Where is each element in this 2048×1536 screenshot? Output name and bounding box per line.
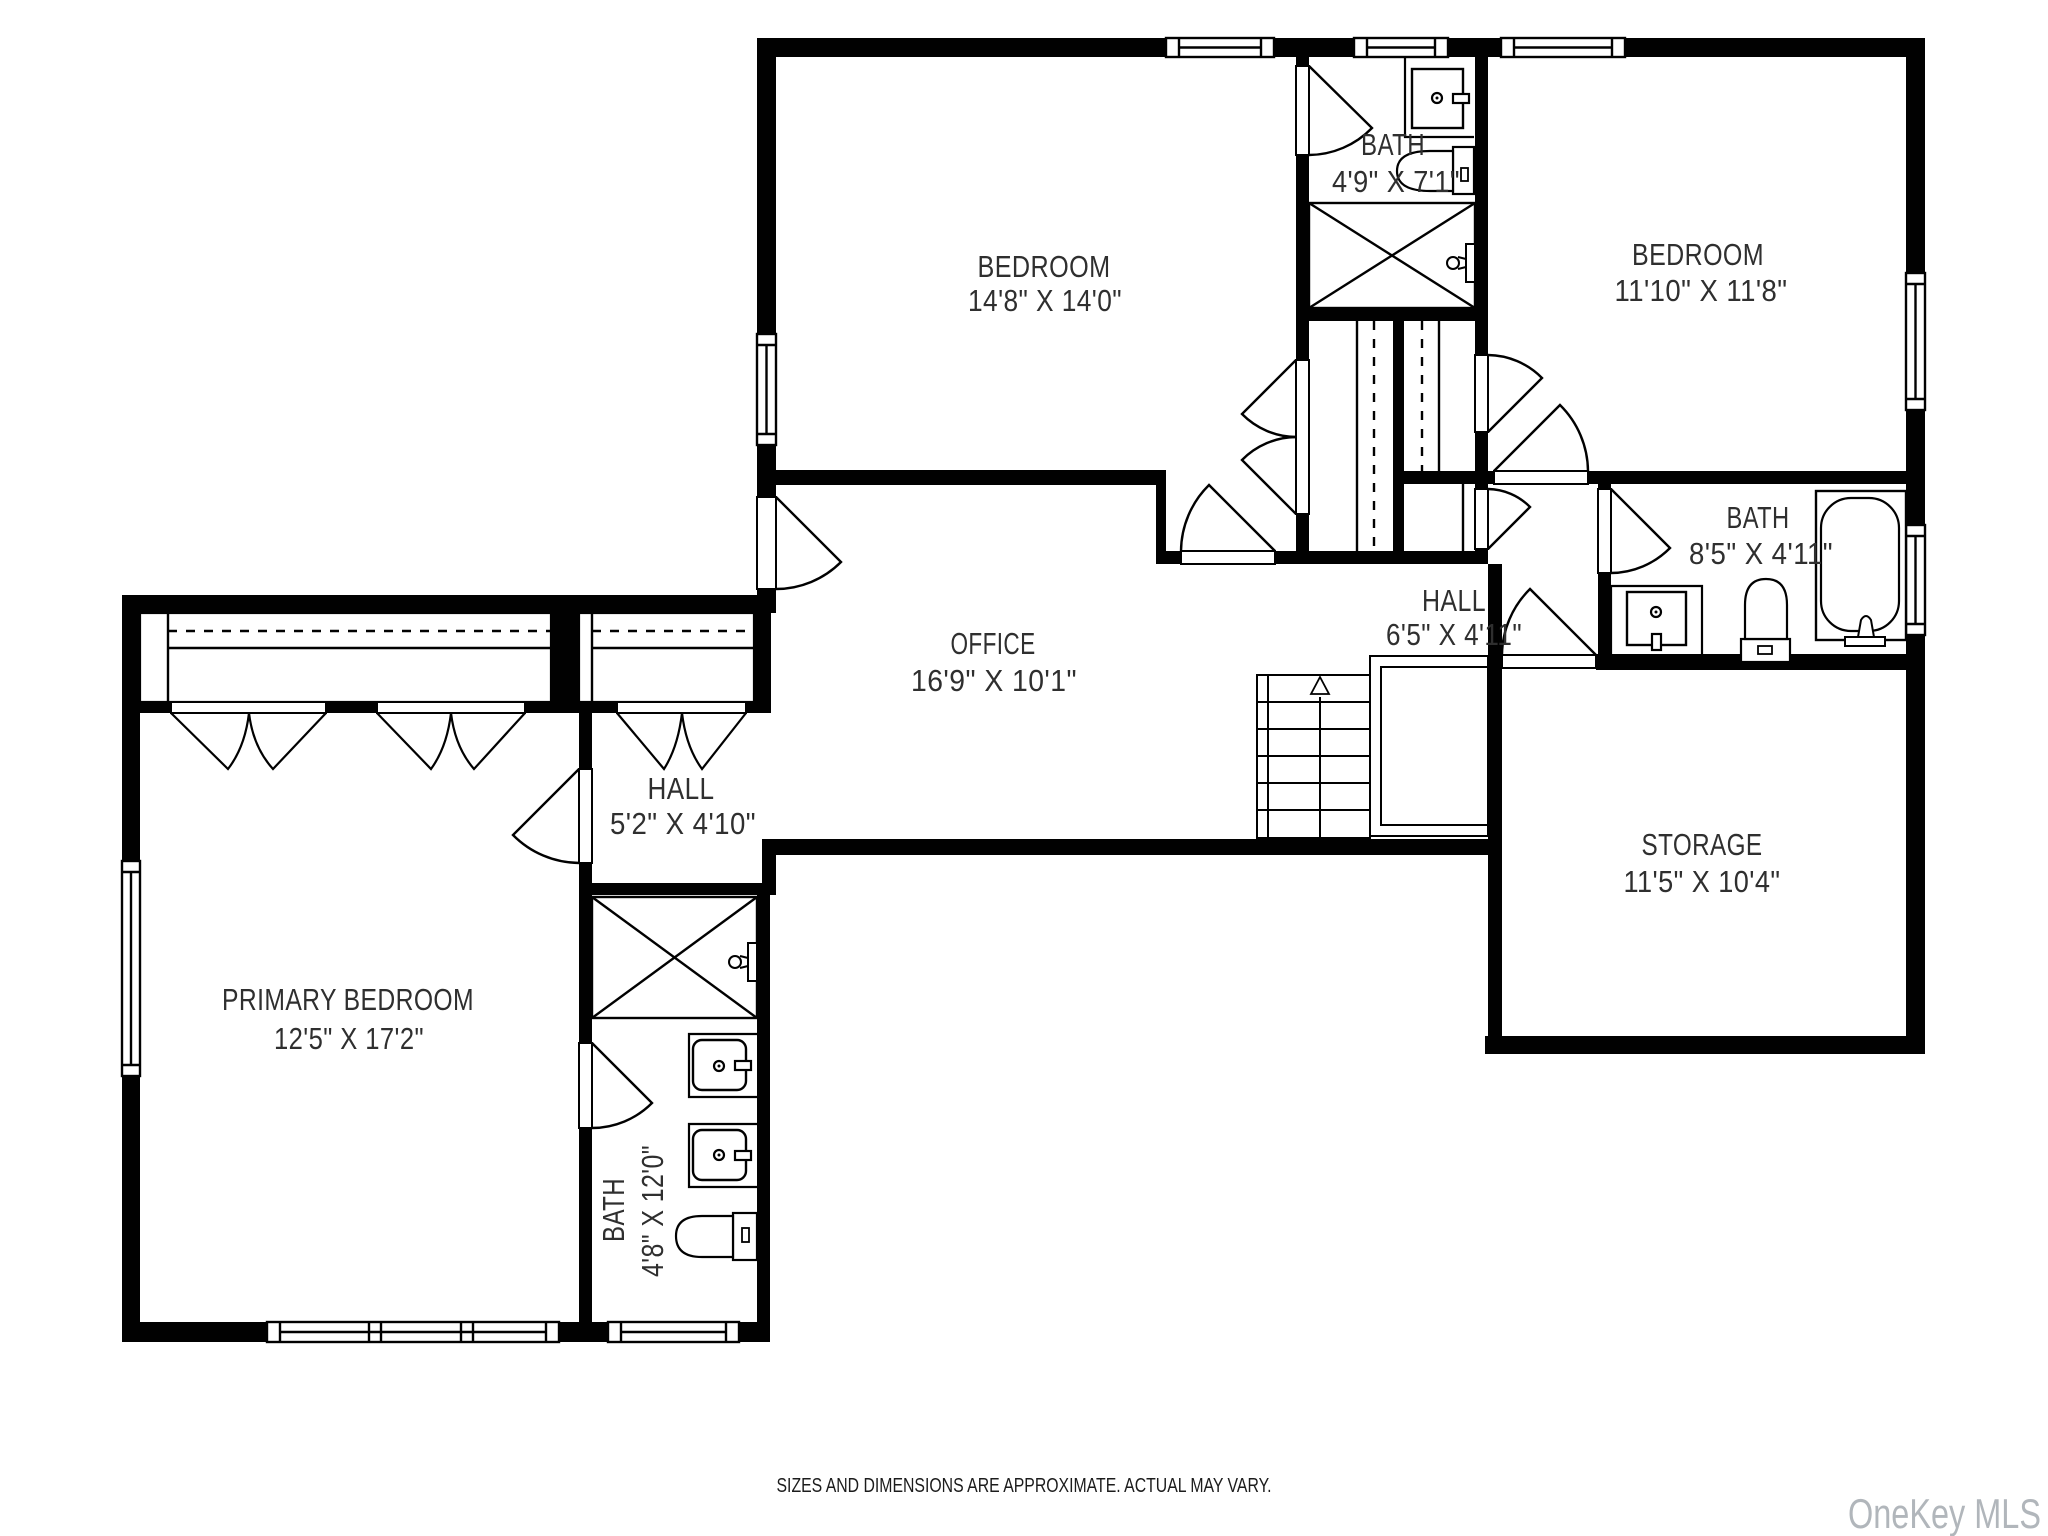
svg-text:BATH: BATH: [1727, 500, 1790, 535]
svg-text:8'5" X 4'11": 8'5" X 4'11": [1689, 536, 1833, 571]
svg-text:OFFICE: OFFICE: [951, 626, 1036, 661]
svg-text:12'5" X 17'2": 12'5" X 17'2": [274, 1021, 424, 1056]
svg-text:SIZES AND DIMENSIONS ARE APPRO: SIZES AND DIMENSIONS ARE APPROXIMATE. AC…: [777, 1474, 1272, 1497]
svg-text:14'8" X 14'0": 14'8" X 14'0": [968, 283, 1122, 318]
svg-text:6'5" X 4'11": 6'5" X 4'11": [1386, 617, 1522, 652]
svg-text:11'10" X 11'8": 11'10" X 11'8": [1615, 273, 1788, 308]
svg-text:5'2" X 4'10": 5'2" X 4'10": [610, 806, 756, 841]
svg-text:HALL: HALL: [648, 771, 715, 806]
svg-text:HALL: HALL: [1422, 583, 1486, 618]
svg-text:16'9" X 10'1": 16'9" X 10'1": [911, 663, 1077, 698]
svg-text:BATH: BATH: [596, 1178, 631, 1242]
svg-text:PRIMARY BEDROOM: PRIMARY BEDROOM: [222, 982, 474, 1017]
svg-text:BEDROOM: BEDROOM: [978, 249, 1111, 284]
svg-text:4'8" X 12'0": 4'8" X 12'0": [635, 1145, 670, 1277]
svg-text:STORAGE: STORAGE: [1642, 827, 1763, 862]
svg-text:OneKey MLS: OneKey MLS: [1848, 1490, 2041, 1536]
svg-text:BEDROOM: BEDROOM: [1632, 237, 1764, 272]
svg-text:11'5" X 10'4": 11'5" X 10'4": [1624, 864, 1781, 899]
svg-text:BATH: BATH: [1361, 127, 1425, 162]
svg-text:4'9" X 7'1": 4'9" X 7'1": [1332, 164, 1460, 199]
